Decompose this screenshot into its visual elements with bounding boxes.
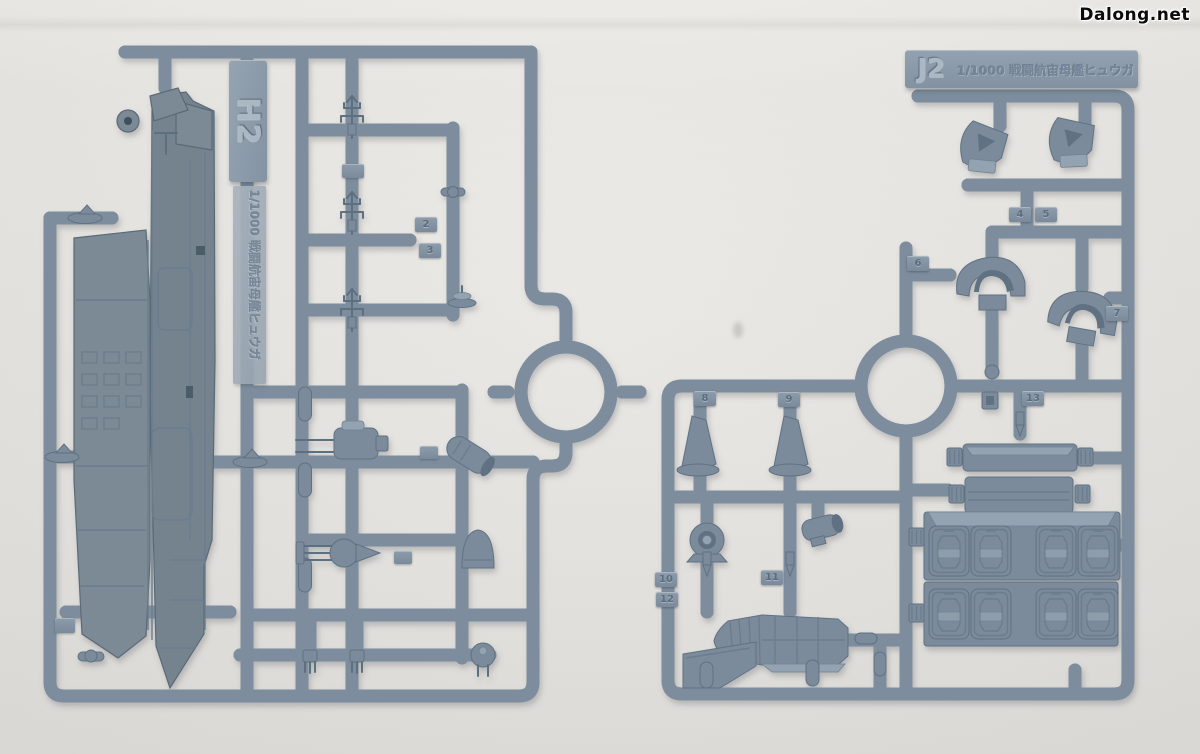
part-number-tag: 8 — [694, 391, 716, 406]
blank-plate — [55, 618, 75, 633]
part-number-tag: 7 — [1106, 306, 1128, 321]
photo-stage: H2 1/1000 戦闘航宙母艦ヒュウガ J2 1/1000 戦闘航宙母艦ヒュウ… — [0, 0, 1200, 754]
sphere-fork-part — [471, 643, 495, 676]
deck-beam-part — [949, 477, 1090, 513]
hull-half-small-part — [74, 230, 150, 658]
part-number-tag: 4 — [1009, 207, 1031, 222]
left-sprue-scale-label: 1/1000 戦闘航宙母艦ヒュウガ — [242, 190, 266, 380]
right-sprue — [668, 96, 1128, 694]
part-number-tag: 10 — [655, 572, 677, 587]
blank-plate — [394, 551, 412, 564]
part-number-tag: 11 — [761, 570, 783, 585]
part-number-tag: 3 — [419, 243, 441, 258]
cylinder-part — [442, 432, 498, 479]
clip-tube-part — [982, 392, 998, 409]
part-number-tag: 5 — [1035, 207, 1057, 222]
part-number-tag: 13 — [1022, 391, 1044, 406]
part-number-tag: 9 — [778, 392, 800, 407]
mast-part — [341, 289, 363, 331]
sprue-ball-end — [985, 365, 999, 379]
deck-beam-part — [947, 444, 1093, 471]
right-sprue-scale-label: 1/1000 戦闘航宙母艦ヒュウガ — [957, 60, 1138, 79]
intake-part — [958, 116, 1096, 175]
part-number-tag: 6 — [907, 256, 929, 271]
watermark-text: Dalong.net — [1079, 5, 1190, 25]
fin-wedge-part — [677, 416, 811, 476]
mast-part — [341, 192, 363, 234]
blank-plate — [420, 446, 438, 459]
right-sprue-code: J2 — [905, 54, 957, 84]
angled-cylinder-part — [800, 512, 847, 548]
right-sprue-code-plate: J2 1/1000 戦闘航宙母艦ヒュウガ — [905, 50, 1138, 88]
sprues-photo — [0, 0, 1200, 754]
left-sprue-code-plate: H2 — [229, 60, 267, 182]
part-number-tag: 12 — [656, 592, 678, 607]
left-sprue — [45, 52, 640, 696]
left-sprue-label-plate: 1/1000 戦闘航宙母艦ヒュウガ — [233, 186, 266, 384]
bridge-canopy-part — [957, 257, 1122, 349]
container-row-part — [909, 582, 1118, 646]
twin-turret-part — [296, 421, 388, 459]
part-number-tag: 2 — [415, 217, 437, 232]
left-sprue-code: H2 — [231, 97, 266, 145]
container-row-part — [909, 512, 1120, 580]
step-block-part — [683, 642, 756, 688]
blank-plate — [342, 164, 364, 178]
